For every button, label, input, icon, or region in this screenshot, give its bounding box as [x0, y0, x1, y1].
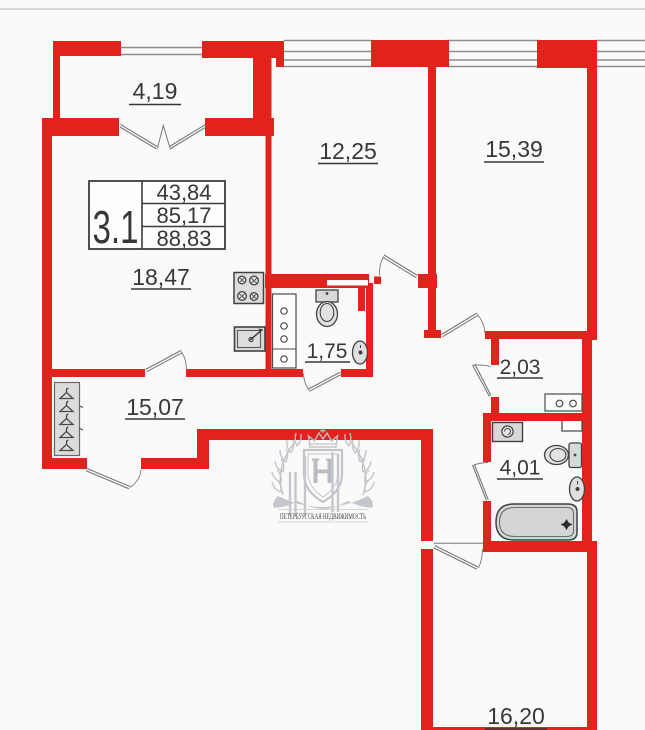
svg-text:85,17: 85,17	[156, 203, 211, 228]
svg-text:15,07: 15,07	[126, 394, 184, 420]
svg-text:4,19: 4,19	[133, 78, 178, 104]
svg-text:12,25: 12,25	[319, 138, 377, 164]
svg-text:43,84: 43,84	[156, 180, 211, 205]
svg-text:88,83: 88,83	[156, 226, 211, 251]
svg-text:1,75: 1,75	[307, 340, 348, 363]
svg-text:18,47: 18,47	[132, 264, 190, 290]
svg-text:3.1: 3.1	[93, 201, 139, 253]
svg-text:ПЕТЕРБУРГСКАЯ НЕДВИЖИМОСТЬ: ПЕТЕРБУРГСКАЯ НЕДВИЖИМОСТЬ	[280, 512, 366, 521]
svg-text:4,01: 4,01	[500, 457, 541, 480]
svg-text:16,20: 16,20	[487, 703, 545, 729]
svg-text:2,03: 2,03	[500, 356, 541, 379]
svg-text:15,39: 15,39	[485, 136, 543, 162]
